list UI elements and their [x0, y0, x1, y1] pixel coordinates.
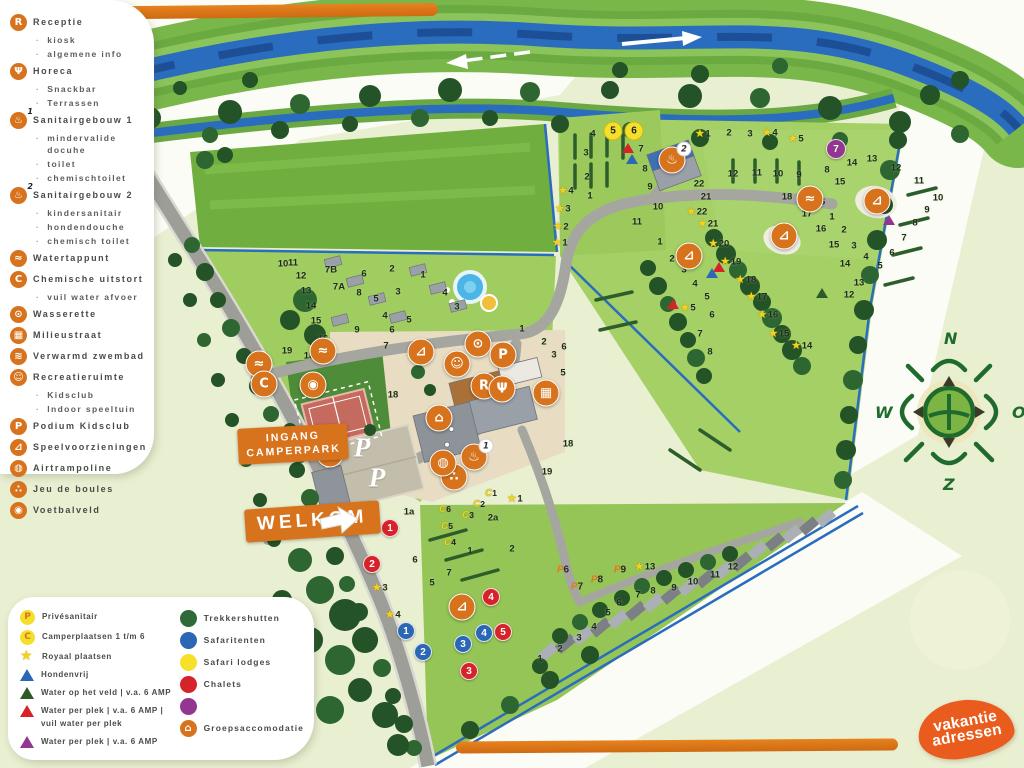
safaritent-marker: 1 [397, 622, 415, 640]
pitch-legend-item: Water per plek | v.a. 6 AMP [20, 735, 172, 748]
camperplaats-marker: 6 [625, 122, 644, 141]
zwembad-icon: ≋ [10, 348, 27, 365]
pitch-number: 9 [924, 205, 929, 216]
pitch-number: 10 [278, 259, 289, 270]
accommodation-legend-item: ⌂Groepsaccomodatie [180, 720, 304, 737]
pitch-type-triangle [626, 154, 638, 164]
pitch-number: 5 [560, 368, 565, 379]
pitch-legend-label: Water per plek | v.a. 6 AMP [41, 735, 158, 748]
legend-item-label: Voetbalveld [33, 502, 100, 519]
accommodation-legend-item: Chalets [180, 676, 304, 693]
compass-south-label: Z [942, 475, 955, 492]
pitch-number: 6 [389, 325, 394, 336]
facilities-legend-panel: RReceptiekioskalgemene infoΨHorecaSnackb… [0, 0, 154, 474]
pitch-number: 3 [454, 302, 459, 313]
horeca-map-badge: Ψ [489, 376, 516, 403]
royaal-pitch-number: ★20 [709, 239, 730, 250]
pitch-number: 11 [288, 258, 298, 269]
royaal-pitch-number: ★3 [555, 204, 570, 215]
pitch-number: 4 [591, 622, 596, 633]
pitch-number: 16 [816, 224, 827, 235]
pitch-number: 2a [488, 513, 499, 524]
pitch-number: 1 [420, 270, 425, 281]
voetbal-icon: ◉ [10, 502, 27, 519]
privesanitair-label: P7 [571, 582, 583, 593]
camperplaats-label: C4 [444, 532, 456, 550]
pitch-legend-item: CCamperplaatsen 1 t/m 6 [20, 630, 172, 645]
pitch-number: 1 [519, 324, 524, 335]
pitch-number: 1 [587, 191, 592, 202]
legend-item-label: Verwarmd zwembad [33, 348, 145, 365]
royaal-pitch-number: ★1 [695, 129, 710, 140]
recreatie-icon: ☺ [10, 369, 27, 386]
tap-map-badge: ≈ [310, 338, 337, 365]
trampoline-icon: ◍ [10, 460, 27, 477]
camperplaats-label: C2 [473, 494, 485, 512]
accommodation-legend-item [180, 698, 304, 715]
pitch-number: 5 [406, 315, 411, 326]
legend-item-label: Podium Kidsclub [33, 418, 131, 435]
pitch-number: 12 [891, 163, 902, 174]
pitch-number: 5 [877, 261, 882, 272]
badge-number-sup: 1 [479, 439, 494, 454]
pitch-triangle-icon [20, 705, 34, 717]
legend-item-chemisch: CChemische uitstort [10, 271, 148, 288]
pitch-number: 2 [841, 225, 846, 236]
royaal-pitch-number: ★14 [792, 341, 813, 352]
legend-item-sanitair: ♨2Sanitairgebouw 2 [10, 187, 148, 204]
podium-map-badge: P [490, 342, 517, 369]
pitch-legend-item: ★Royaal plaatsen [20, 650, 172, 663]
chemisch-map-badge: C [251, 371, 278, 398]
legend-sub-item: kindersanitair [36, 207, 148, 219]
legend-item-sanitair: ♨1Sanitairgebouw 1 [10, 112, 148, 129]
royaal-pitch-number: ★21 [698, 219, 719, 230]
pitch-number: 5 [704, 292, 709, 303]
legend-item-receptie: RReceptie [10, 14, 148, 31]
pitch-number: 7B [325, 265, 337, 276]
pitch-number: 2 [509, 544, 514, 555]
pitch-number: 6 [709, 310, 714, 321]
compass-north-label: N [944, 329, 958, 348]
pitch-number: 4 [590, 129, 595, 140]
pitch-number: 10 [653, 202, 664, 213]
accommodation-legend-label: Safaritenten [204, 632, 266, 649]
legend-item-recreatie: ☺Recreatieruimte [10, 369, 148, 386]
legend-sub-item: chemischtoilet [36, 172, 148, 184]
privesanitair-label: P6 [557, 565, 569, 576]
chalet-marker: 3 [460, 662, 478, 680]
pitch-legend-label: Royaal plaatsen [42, 650, 112, 663]
pitch-number: 13 [301, 286, 312, 297]
royaal-pitch-number: ★17 [747, 292, 768, 303]
pitch-number: 13 [867, 154, 878, 165]
pitch-number: 7 [446, 568, 451, 579]
speel-icon: ⊿ [10, 439, 27, 456]
royaal-pitch-number: ★16 [758, 310, 779, 321]
pitch-number: 5 [605, 608, 610, 619]
pitch-number: 14 [306, 301, 317, 312]
pitch-number: 18 [388, 390, 399, 401]
accommodation-dot-icon [180, 698, 197, 715]
accommodation-dot-icon [180, 632, 197, 649]
royaal-pitch-number: ★13 [635, 562, 656, 573]
legend-item-label: Receptie [33, 14, 83, 31]
pitch-number: 6 [361, 269, 366, 280]
pitch-number: 4 [382, 311, 387, 322]
pitch-number: 1 [657, 237, 662, 248]
pitch-number: 10 [688, 577, 699, 588]
pitch-number: 2 [584, 172, 589, 183]
pitch-number: 6 [412, 555, 417, 566]
privesanitair-label: P8 [591, 575, 603, 586]
pitch-number: 1 [537, 654, 542, 665]
groepsaccommodatie-marker: 7 [826, 139, 846, 159]
pitch-number: 7 [638, 144, 643, 155]
pitch-number: 4 [863, 252, 868, 263]
safaritent-marker: 2 [414, 643, 432, 661]
pitch-number: 8 [707, 347, 712, 358]
sanitair-number-sup: 1 [27, 107, 33, 116]
pitch-type-triangle [816, 288, 828, 298]
royaal-pitch-number: ★15 [769, 329, 790, 340]
legend-sub-item: algemene info [36, 48, 148, 60]
royaal-pitch-number: ★22 [687, 207, 708, 218]
camperplaats-label: C3 [462, 505, 474, 523]
pitch-number: 3 [583, 148, 588, 159]
legend-sub-item: Kidsclub [36, 389, 148, 401]
pitch-number: 9 [671, 583, 676, 594]
accommodation-legend-item: Trekkershutten [180, 610, 304, 627]
pitch-number: 12 [728, 562, 739, 573]
pitch-number: 19 [282, 346, 293, 357]
milieu-map-badge: ▦ [533, 380, 560, 407]
legend-item-boules: ∴Jeu de boules [10, 481, 148, 498]
legend-item-label: Horeca [33, 63, 73, 80]
huis-map-badge: ⌂ [426, 405, 453, 432]
camperpark-entrance-label: INGANG CAMPERPARK [237, 423, 349, 465]
pitch-number: 15 [829, 240, 840, 251]
pitch-number: 4 [442, 288, 447, 299]
pitch-number: 1 [467, 546, 472, 557]
pitch-number: 21 [701, 192, 712, 203]
bottom-legend-panel: PPrivésanitairCCamperplaatsen 1 t/m 6★Ro… [8, 597, 314, 760]
speel-map-badge: ⊿ [408, 339, 435, 366]
safaritent-marker: 4 [475, 624, 493, 642]
pitch-type-triangle [706, 268, 718, 278]
pitch-triangle-icon [20, 669, 34, 681]
pitch-legend-label: Water per plek | v.a. 6 AMP |vuil water … [41, 704, 163, 730]
wasserette-map-badge: ⊙ [465, 331, 492, 358]
pitch-circle-icon: P [20, 610, 35, 625]
legend-item-wasserette: ⊙Wasserette [10, 306, 148, 323]
pitch-type-triangle [622, 143, 634, 153]
pitch-type-triangle [667, 299, 679, 309]
camperplaats-label: C1 [485, 483, 497, 501]
pitch-number: 6 [616, 598, 621, 609]
accommodation-legend-label: Chalets [204, 676, 242, 693]
royaal-star-icon: ★ [20, 650, 35, 663]
legend-item-label: Airtrampoline [33, 460, 112, 477]
pitch-number: 2 [557, 644, 562, 655]
pitch-legend-column: PPrivésanitairCCamperplaatsen 1 t/m 6★Ro… [20, 607, 172, 752]
legend-item-label: Watertappunt [33, 250, 110, 267]
campground-map: 4321789101112345678121110981514131211109… [0, 0, 1024, 768]
royaal-pitch-number: ★4 [762, 128, 777, 139]
legend-item-label: Chemische uitstort [33, 271, 143, 288]
chalet-marker: 1 [381, 519, 399, 537]
royaal-pitch-number: ★1 [552, 238, 567, 249]
pitch-legend-item: Water per plek | v.a. 6 AMP |vuil water … [20, 704, 172, 730]
legend-sub-item: vuil water afvoer [36, 291, 148, 303]
royaal-pitch-number: ★4 [558, 186, 573, 197]
royaal-pitch-number: ★4 [385, 610, 400, 621]
compass-east-label: O [1012, 403, 1024, 422]
sanitair-map-badge: ♨2 [659, 147, 686, 174]
legend-sub-item: toilet [36, 158, 148, 170]
pitch-number: 10 [773, 169, 784, 180]
pitch-number: 19 [542, 467, 553, 478]
pitch-number: 11 [914, 176, 924, 187]
speel-map-badge: ⊿ [449, 594, 476, 621]
pitch-number: 2 [669, 254, 674, 265]
safaritent-marker: 3 [454, 635, 472, 653]
pitch-legend-item: Water op het veld | v.a. 6 AMP [20, 686, 172, 699]
receptie-icon: R [10, 14, 27, 31]
legend-item-podium: PPodium Kidsclub [10, 418, 148, 435]
groepsaccomodatie-icon: ⌂ [180, 720, 197, 737]
pitch-number: 3 [851, 241, 856, 252]
pitch-number: 7 [697, 329, 702, 340]
royaal-pitch-number: ★2 [553, 222, 568, 233]
pitch-number: 8 [650, 586, 655, 597]
speel-map-badge: ⊿ [676, 243, 703, 270]
pitch-circle-icon: C [20, 630, 35, 645]
pitch-number: 11 [632, 217, 642, 228]
legend-sub-item: hondendouche [36, 221, 148, 233]
pitch-number: 12 [296, 271, 307, 282]
legend-item-tap: ≈Watertappunt [10, 250, 148, 267]
pitch-number: 7 [901, 233, 906, 244]
legend-item-speel: ⊿Speelvoorzieningen [10, 439, 148, 456]
chemisch-icon: C [10, 271, 27, 288]
pitch-number: 8 [824, 165, 829, 176]
badge-number-sup: 2 [677, 142, 692, 157]
legend-sub-item: mindervalide docuhe [36, 132, 148, 156]
chalet-marker: 5 [494, 623, 512, 641]
legend-item-label: Sanitairgebouw 2 [33, 187, 133, 204]
legend-item-label: Milieustraat [33, 327, 102, 344]
royaal-pitch-number: ★5 [680, 303, 695, 314]
accommodation-legend-column: TrekkershuttenSafaritentenSafari lodgesC… [180, 607, 304, 752]
pitch-number: 4 [692, 279, 697, 290]
pitch-number: 7 [635, 590, 640, 601]
pitch-number: 3 [551, 350, 556, 361]
pitch-number: 11 [752, 168, 762, 179]
pitch-legend-label: Water op het veld | v.a. 6 AMP [41, 686, 171, 699]
pitch-number: 18 [563, 439, 574, 450]
pitch-number: 2 [726, 128, 731, 139]
pitch-type-triangle [883, 215, 895, 225]
boules-icon: ∴ [10, 481, 27, 498]
pitch-legend-item: Hondenvrij [20, 668, 172, 681]
welcome-arrow-icon [318, 505, 360, 541]
legend-item-horeca: ΨHoreca [10, 63, 148, 80]
legend-sub-item: Indoor speeltuin [36, 403, 148, 415]
legend-sub-item: chemisch toilet [36, 235, 148, 247]
pitch-number: 7A [333, 282, 345, 293]
legend-item-label: Sanitairgebouw 1 [33, 112, 133, 129]
legend-sub-item: Snackbar [36, 83, 148, 95]
pitch-legend-item: PPrivésanitair [20, 610, 172, 625]
legend-item-milieu: ▦Milieustraat [10, 327, 148, 344]
legend-item-voetbal: ◉Voetbalveld [10, 502, 148, 519]
pitch-number: 14 [847, 158, 858, 169]
camperplaats-label: C6 [439, 499, 451, 517]
accommodation-legend-label: Trekkershutten [204, 610, 280, 627]
pitch-triangle-icon [20, 736, 34, 748]
accommodation-legend-item: Safari lodges [180, 654, 304, 671]
pitch-number: 6 [889, 248, 894, 259]
speel-map-badge: ⊿ [771, 223, 798, 250]
pitch-number: 1a [404, 507, 415, 518]
pitch-number: 1 [829, 212, 834, 223]
legend-item-label: Wasserette [33, 306, 97, 323]
pitch-number: 9 [647, 182, 652, 193]
pitch-number: 13 [854, 278, 865, 289]
sanitair-number-sup: 2 [27, 182, 33, 191]
pitch-number: 9 [796, 170, 801, 181]
tap-icon: ≈ [10, 250, 27, 267]
pitch-number: 5 [429, 578, 434, 589]
milieu-icon: ▦ [10, 327, 27, 344]
accommodation-dot-icon [180, 610, 197, 627]
pitch-number: 2 [541, 337, 546, 348]
compass-rose: N O Z W [874, 328, 1024, 492]
pool-slide [481, 295, 497, 311]
pitch-legend-label: Hondenvrij [41, 668, 89, 681]
pitch-number: 22 [694, 179, 705, 190]
pitch-number: 7 [383, 341, 388, 352]
pitch-triangle-icon [20, 687, 34, 699]
pitch-number: 9 [354, 325, 359, 336]
privesanitair-label: P9 [614, 565, 626, 576]
pitch-number: 15 [835, 177, 846, 188]
parking-letter: P [369, 463, 386, 494]
voetbal-map-badge: ◉ [300, 372, 327, 399]
pitch-number: 14 [840, 259, 851, 270]
pitch-legend-label: Camperplaatsen 1 t/m 6 [42, 630, 145, 643]
legend-item-label: Speelvoorzieningen [33, 439, 147, 456]
pitch-number: 11 [710, 570, 720, 581]
pitch-number: 6 [561, 342, 566, 353]
legend-item-trampoline: ◍Airtrampoline [10, 460, 148, 477]
legend-item-zwembad: ≋Verwarmd zwembad [10, 348, 148, 365]
pitch-number: 3 [395, 287, 400, 298]
accommodation-legend-label: Groepsaccomodatie [204, 720, 304, 737]
pitch-number: 8 [912, 218, 917, 229]
legend-item-label: Jeu de boules [33, 481, 114, 498]
pitch-number: 12 [728, 169, 739, 180]
accommodation-dot-icon [180, 654, 197, 671]
pitch-number: 15 [311, 316, 322, 327]
podium-icon: P [10, 418, 27, 435]
pitch-number: 8 [356, 288, 361, 299]
pitch-legend-label: Privésanitair [42, 610, 98, 623]
pitch-number: 10 [933, 193, 944, 204]
legend-sub-item: kiosk [36, 34, 148, 46]
compass-west-label: W [875, 403, 894, 422]
pitch-number: 12 [844, 290, 855, 301]
parking-letter: P [354, 433, 371, 464]
royaal-pitch-number: ★5 [788, 134, 803, 145]
legend-item-label: Recreatieruimte [33, 369, 125, 386]
pitch-number: 5 [373, 294, 378, 305]
recreatie-map-badge: ☺ [444, 351, 471, 378]
royaal-pitch-number: ★18 [736, 275, 757, 286]
pitch-number: 8 [642, 164, 647, 175]
chalet-marker: 4 [482, 588, 500, 606]
pitch-number: 3 [747, 129, 752, 140]
horeca-icon: Ψ [10, 63, 27, 80]
royaal-pitch-number: ★3 [372, 583, 387, 594]
sanitair-icon: ♨1 [10, 112, 27, 129]
trampoline-map-badge: ◍ [430, 450, 457, 477]
chalet-marker: 2 [363, 555, 381, 573]
sanitair-icon: ♨2 [10, 187, 27, 204]
tap-map-badge: ≈ [797, 186, 824, 213]
accommodation-legend-label: Safari lodges [204, 654, 272, 671]
speel-map-badge: ⊿ [864, 188, 891, 215]
accommodation-legend-item: Safaritenten [180, 632, 304, 649]
accommodation-dot-icon [180, 676, 197, 693]
royaal-pitch-number: ★1 [507, 494, 522, 505]
pitch-number: 2 [389, 264, 394, 275]
legend-sub-item: Terrassen [36, 97, 148, 109]
sanitair-map-badge: ♨1 [461, 444, 488, 471]
wasserette-icon: ⊙ [10, 306, 27, 323]
camperplaats-marker: 5 [604, 122, 623, 141]
pitch-number: 3 [576, 633, 581, 644]
pitch-number: 18 [782, 192, 793, 203]
